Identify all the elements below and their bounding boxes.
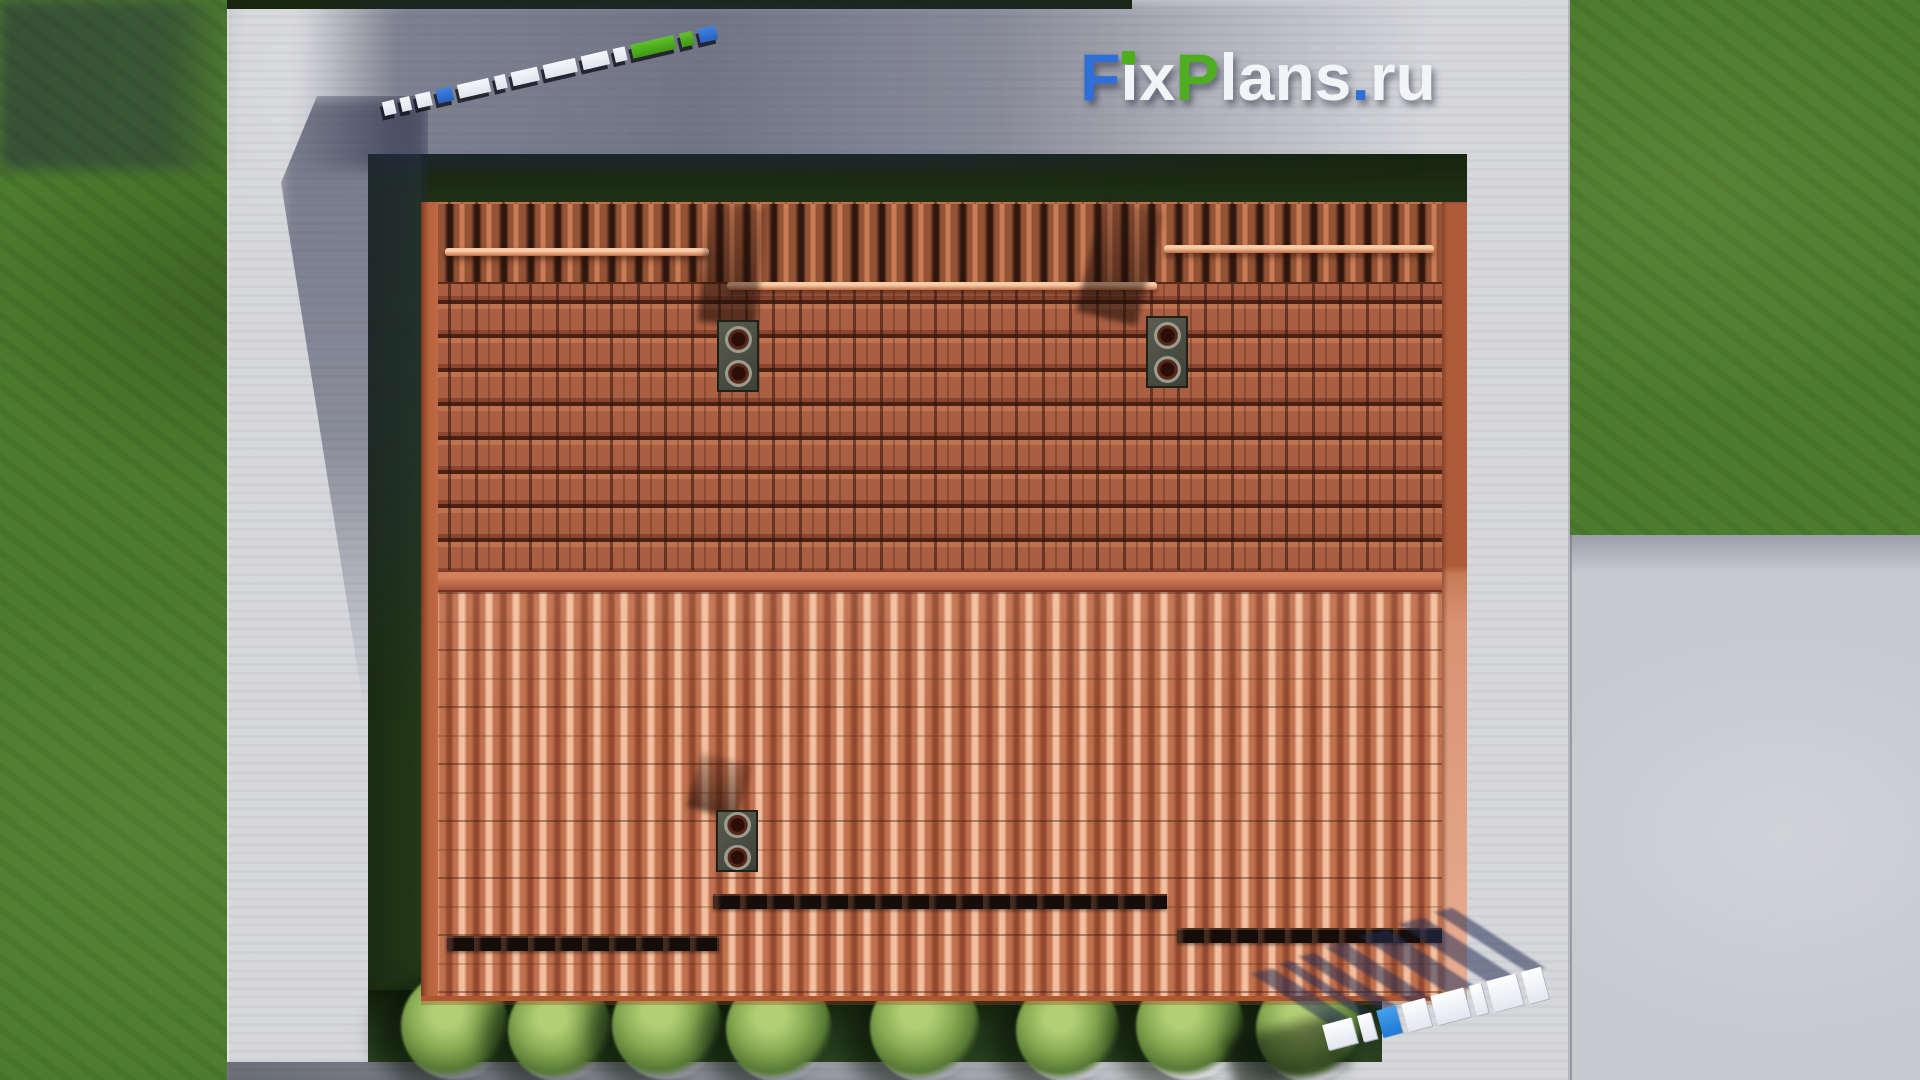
letter-top-block [382,100,397,116]
flue-pipe [725,326,752,353]
logo-letters-lans: lans [1219,44,1351,110]
flue-pipe [724,812,751,838]
flue-pipe [724,845,751,871]
chimney-3 [716,810,758,872]
snow-guard-upper-right [1164,245,1434,253]
flue-pipe [1154,356,1181,383]
letter-top-block [613,46,628,62]
letter-top-block [1521,967,1549,1004]
snow-guard-lower-middle [713,894,1167,909]
lawn-shadow-top [368,154,1467,206]
letter-top-block-blue [1376,1006,1403,1038]
letter-top-block [1486,974,1523,1013]
aerial-roof-render: FixPlans.ru [0,0,1920,1080]
letter-top-block-green [679,31,695,48]
roof-fascia-right [1442,202,1467,996]
chimney-2 [1146,316,1188,388]
roof-fascia-left [421,202,438,996]
flue-pipe [725,360,752,387]
letter-top-block [399,96,412,112]
concrete-driveway [1570,535,1920,1080]
logo-letter-x: x [1139,44,1176,110]
snow-guard-lower-left [447,936,719,951]
logo-dot: . [1352,44,1370,110]
letter-top-block [494,74,508,90]
logo-letter-i: i [1120,44,1138,110]
roof-ridge-cap [421,570,1467,592]
logo-letter-p: P [1175,44,1219,110]
fixplans-logo: FixPlans.ru [1080,44,1436,110]
letter-top-block [1469,983,1489,1016]
logo-letters-ru: ru [1370,44,1436,110]
lawn-shadow-left [368,154,421,1062]
logo-letter-f: F [1080,44,1120,110]
snow-guard-upper-middle [727,282,1157,290]
flue-pipe [1154,322,1181,349]
chimney-1 [717,320,759,392]
roof-top-tile-course [421,204,1467,284]
roof-upper-slope [421,202,1467,570]
letter-top-block [1401,998,1432,1032]
snow-guard-upper-left [445,248,709,256]
house-roof [421,202,1467,996]
letter-top-block [1357,1012,1378,1042]
